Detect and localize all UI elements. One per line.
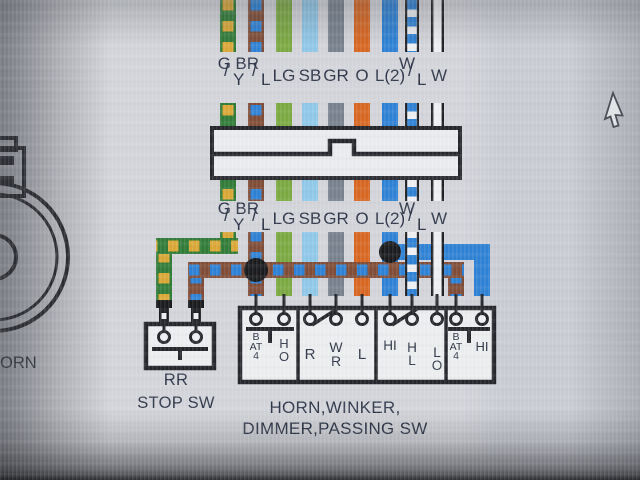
terminal-label-hl: HL [405, 341, 419, 367]
terminal-label-r: R [303, 348, 317, 362]
rr-stop-switch-box [146, 324, 214, 368]
terminal-label-lo: LO [430, 346, 444, 372]
rr-stop-switch [146, 300, 214, 368]
junction-dot-l [379, 241, 401, 263]
horn-partial-label: ORN [0, 354, 36, 373]
terminal-label-hi-passing: HI [475, 341, 489, 354]
terminal-label-ho: HO [277, 338, 291, 363]
bullet-connector-right [188, 300, 204, 324]
terminal-label-hi: HI [383, 339, 397, 352]
junction-dot-brl [244, 258, 268, 282]
connector-block [212, 128, 460, 178]
horn-symbol [0, 138, 68, 331]
terminal-label-bat4: BAT4 [249, 333, 263, 362]
bullet-connector-left [156, 300, 172, 324]
terminal-label-bat4-passing: BAT4 [449, 333, 463, 362]
terminal-label-wr: WR [329, 341, 343, 368]
screen-photo: G/Y BR/L LG SB GR O L(2) W/L W G/Y BR/L … [0, 0, 640, 480]
wire-label-w-top: W [413, 66, 465, 86]
terminal-label-l: L [355, 348, 369, 362]
wire-label-w-mid: W [413, 209, 465, 229]
switch-assembly-caption: HORN,WINKER, DIMMER,PASSING SW [200, 397, 470, 439]
